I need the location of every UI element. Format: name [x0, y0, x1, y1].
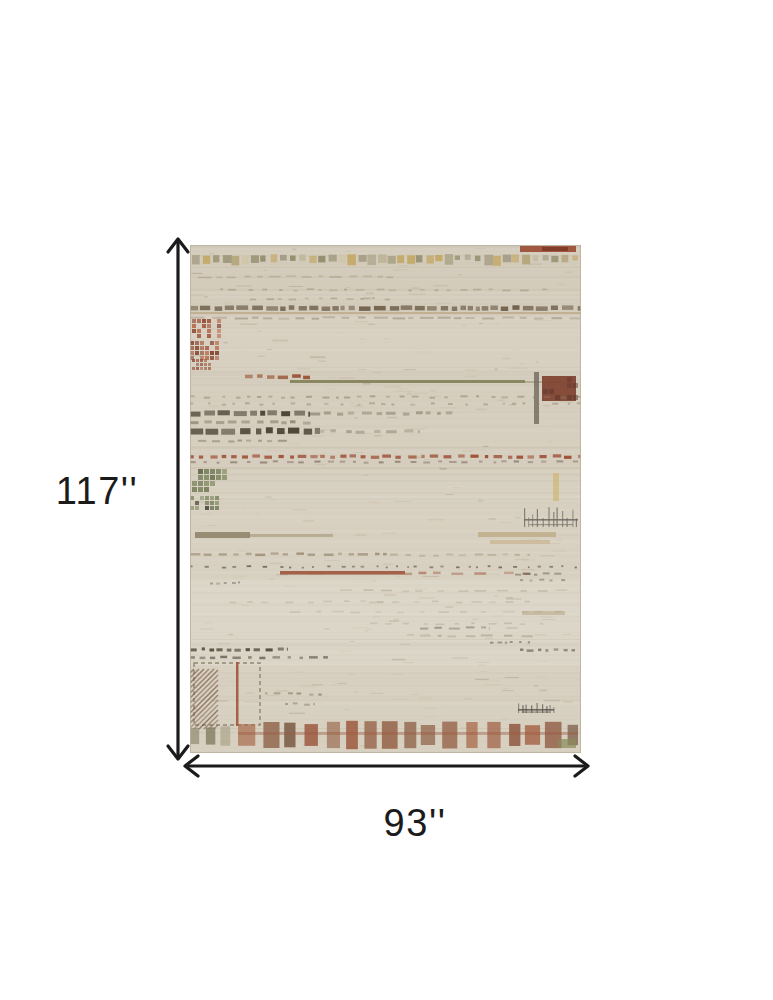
product-dimension-diagram: 117'' 93'': [0, 0, 773, 1000]
height-dimension-label: 117'': [36, 470, 158, 513]
arrowhead-left-icon: [185, 756, 198, 776]
arrowhead-right-icon: [575, 756, 588, 776]
arrowhead-down-icon: [168, 746, 188, 759]
rug-texture: [190, 245, 581, 753]
width-dimension-label: 93'': [354, 802, 476, 845]
height-arrow: [168, 239, 188, 759]
rug-image: [190, 245, 581, 753]
arrowhead-up-icon: [168, 239, 188, 252]
width-arrow: [185, 756, 588, 776]
